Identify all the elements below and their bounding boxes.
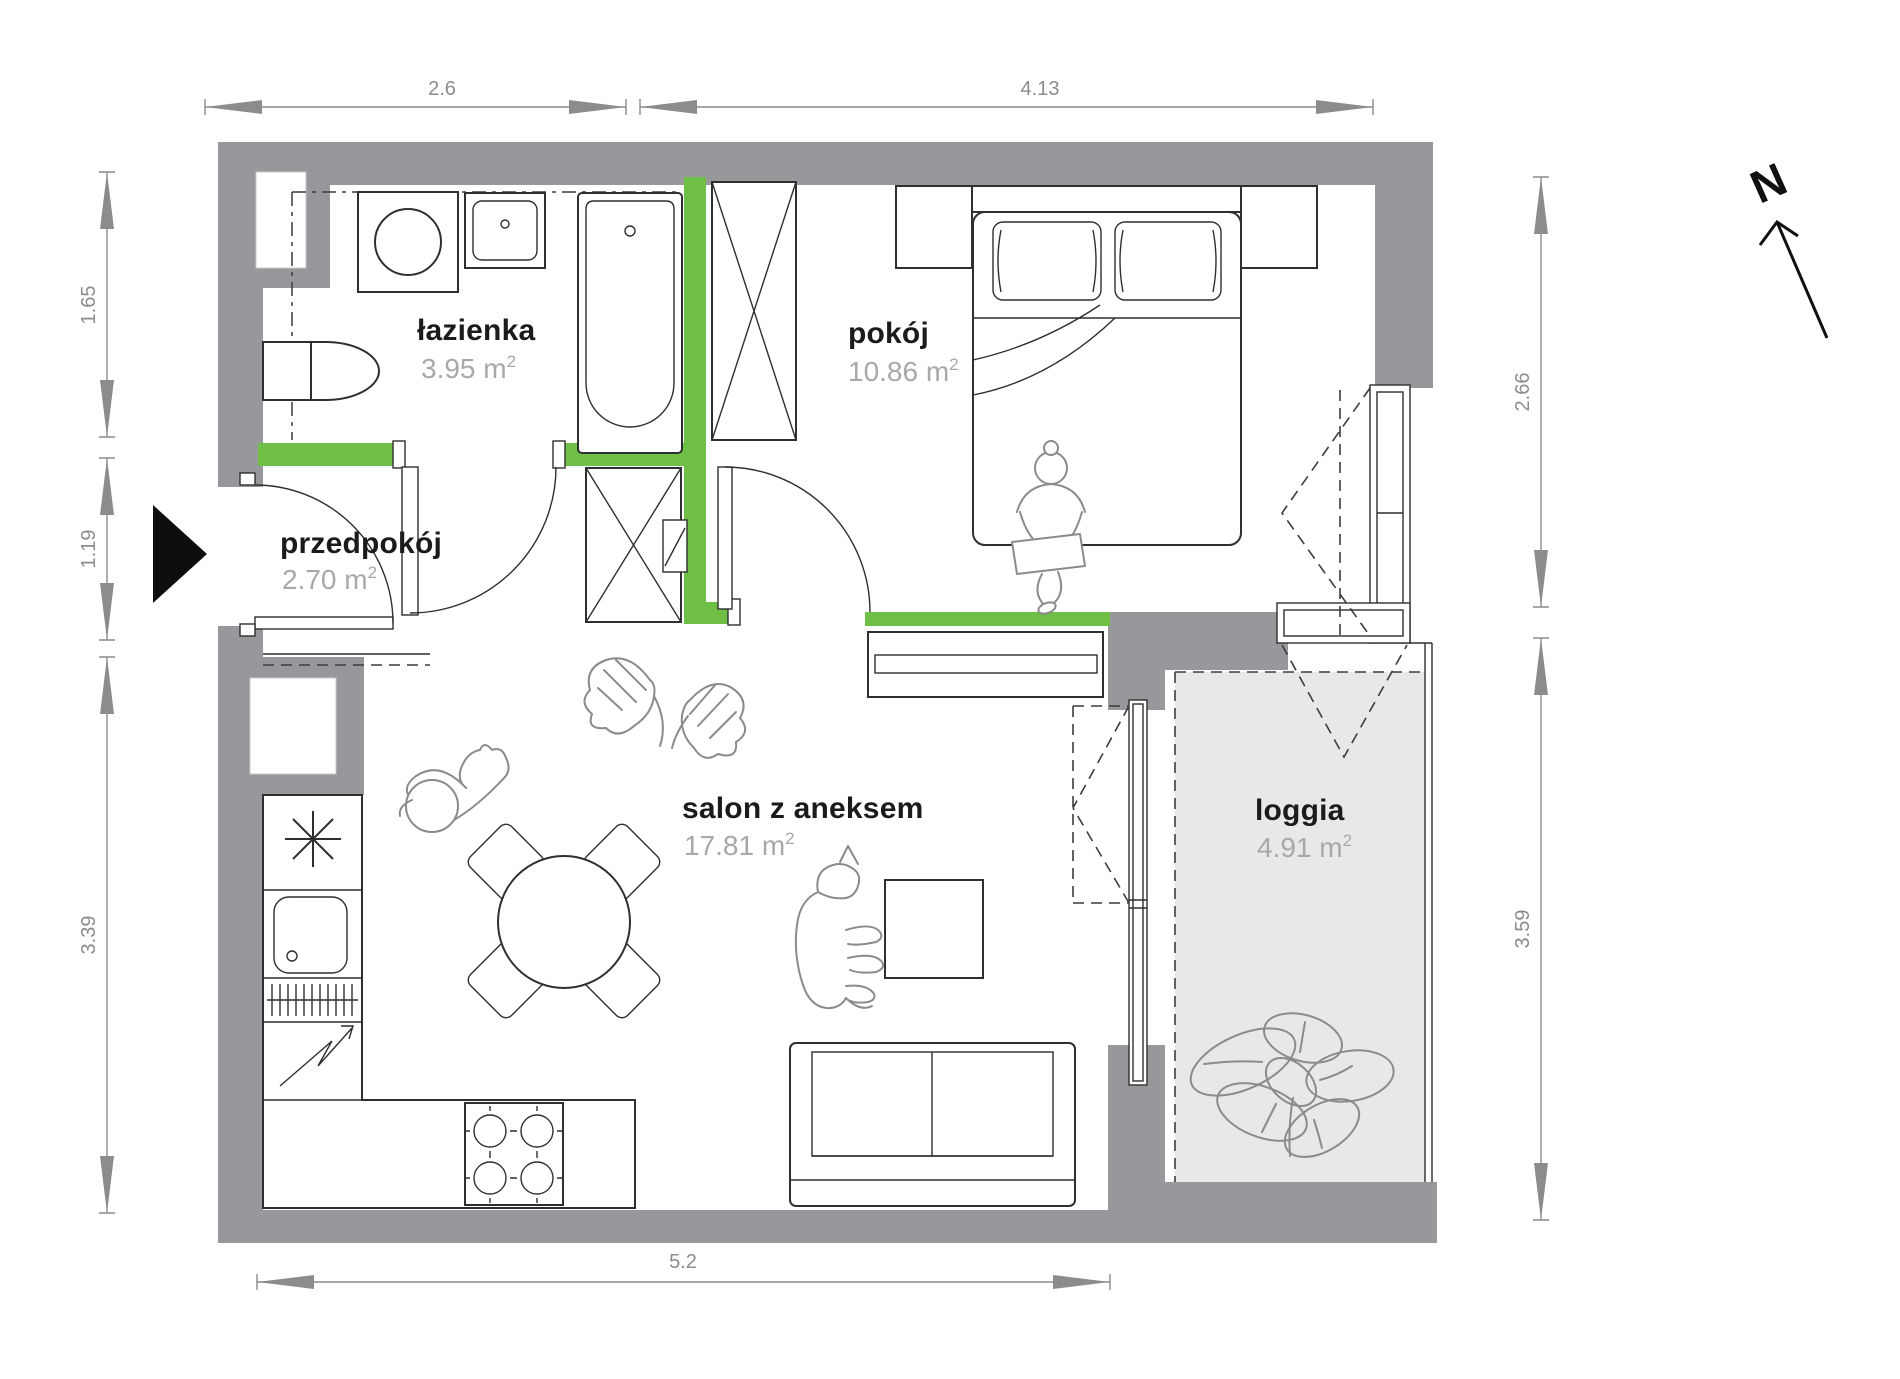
dog [796, 846, 883, 1008]
room-name-loggia: loggia [1255, 794, 1345, 827]
door-jamb-a [393, 441, 405, 468]
stove [465, 1103, 563, 1205]
fridge-icon [285, 811, 341, 867]
livingroom-furniture [263, 632, 1103, 1208]
north-indicator: N [1743, 152, 1827, 338]
room-name-salon: salon z aneksem [682, 792, 923, 825]
dim-label-right-2: 3.59 [1512, 910, 1534, 949]
room-name-przedpokoj: przedpokój [280, 527, 442, 560]
pillow-right [1115, 222, 1221, 300]
window-bottom [1277, 603, 1410, 643]
monstera-plant [584, 658, 745, 758]
wall-bottom-main [218, 1210, 1108, 1243]
balcony-door-frame [1129, 700, 1147, 1085]
sofa [790, 1043, 1075, 1206]
entrance-arrow [153, 505, 207, 603]
pillow-left [993, 222, 1101, 300]
green-wall-d [865, 612, 1110, 626]
wardrobe-bedroom [712, 182, 796, 440]
sideboard [868, 632, 1103, 697]
room-area-loggia: 4.91 m2 [1257, 831, 1352, 863]
entrance-jamb-bottom [240, 624, 255, 636]
wall-right-pokoj [1375, 142, 1433, 388]
entrance-jamb-top [240, 473, 255, 485]
room-area-pokoj: 10.86 m2 [848, 355, 959, 387]
entrance-door-leaf [255, 617, 393, 629]
dimension-left: 1.65 1.19 3.39 [78, 172, 115, 1213]
bed [973, 212, 1241, 545]
dimension-top: 2.6 4.13 [205, 78, 1373, 115]
window-right-opening [1282, 388, 1370, 636]
dimension-right: 2.66 3.59 [1512, 177, 1549, 1220]
room-area-przedpokoj: 2.70 m2 [282, 563, 377, 595]
bedroom-door-leaf [718, 467, 732, 609]
room-name-pokoj: pokój [848, 317, 929, 350]
wall-left-lower [218, 795, 263, 1243]
wall-top [218, 142, 1433, 185]
room-area-salon: 17.81 m2 [684, 829, 795, 861]
bedroom-door [718, 467, 870, 612]
cat [400, 745, 509, 832]
bed-headboard [972, 186, 1241, 212]
wall-corner-salon-loggia [1108, 612, 1288, 670]
dim-label-bottom-1: 5.2 [669, 1251, 697, 1273]
dim-label-top-2: 4.13 [1021, 78, 1060, 100]
bedroom-door-swing [725, 467, 870, 612]
nightstand-left [896, 186, 972, 268]
loggia-area [1175, 643, 1432, 1182]
wardrobe-hall [586, 468, 687, 622]
shaft-opening [250, 678, 336, 774]
dim-label-right-1: 2.66 [1512, 373, 1534, 412]
balcony-door [1073, 700, 1147, 1085]
door-jamb-b [553, 441, 565, 468]
green-wall-c-upper [684, 177, 706, 443]
bedroom-furniture [712, 182, 1317, 616]
room-name-lazienka: łazienka [417, 314, 535, 347]
toilet [263, 342, 379, 400]
dim-label-left-1: 1.65 [78, 286, 100, 325]
balcony-door-swing [1073, 706, 1129, 903]
nightstand-right [1241, 186, 1317, 268]
coffee-table [885, 880, 983, 978]
wall-bottom-loggia [1108, 1182, 1437, 1243]
washing-machine [358, 192, 458, 292]
north-arrow [1760, 222, 1827, 338]
dim-label-top-1: 2.6 [428, 78, 456, 100]
dining-table [498, 856, 630, 988]
dim-label-left-2: 1.19 [78, 530, 100, 569]
wall-niche [256, 172, 306, 268]
green-wall-a [258, 443, 405, 466]
floor-plan: 2.6 4.13 1.65 1.19 3.39 2.66 3.59 5.2 N … [0, 0, 1900, 1379]
bathtub [578, 193, 682, 453]
dim-label-left-3: 3.39 [78, 916, 100, 955]
dining-set [465, 821, 663, 1021]
north-label: N [1743, 152, 1795, 213]
dimension-bottom: 5.2 [257, 1251, 1110, 1290]
bathroom-sink [465, 193, 545, 268]
room-area-lazienka: 3.95 m2 [421, 352, 516, 384]
dishwasher-hatch [267, 984, 358, 1016]
